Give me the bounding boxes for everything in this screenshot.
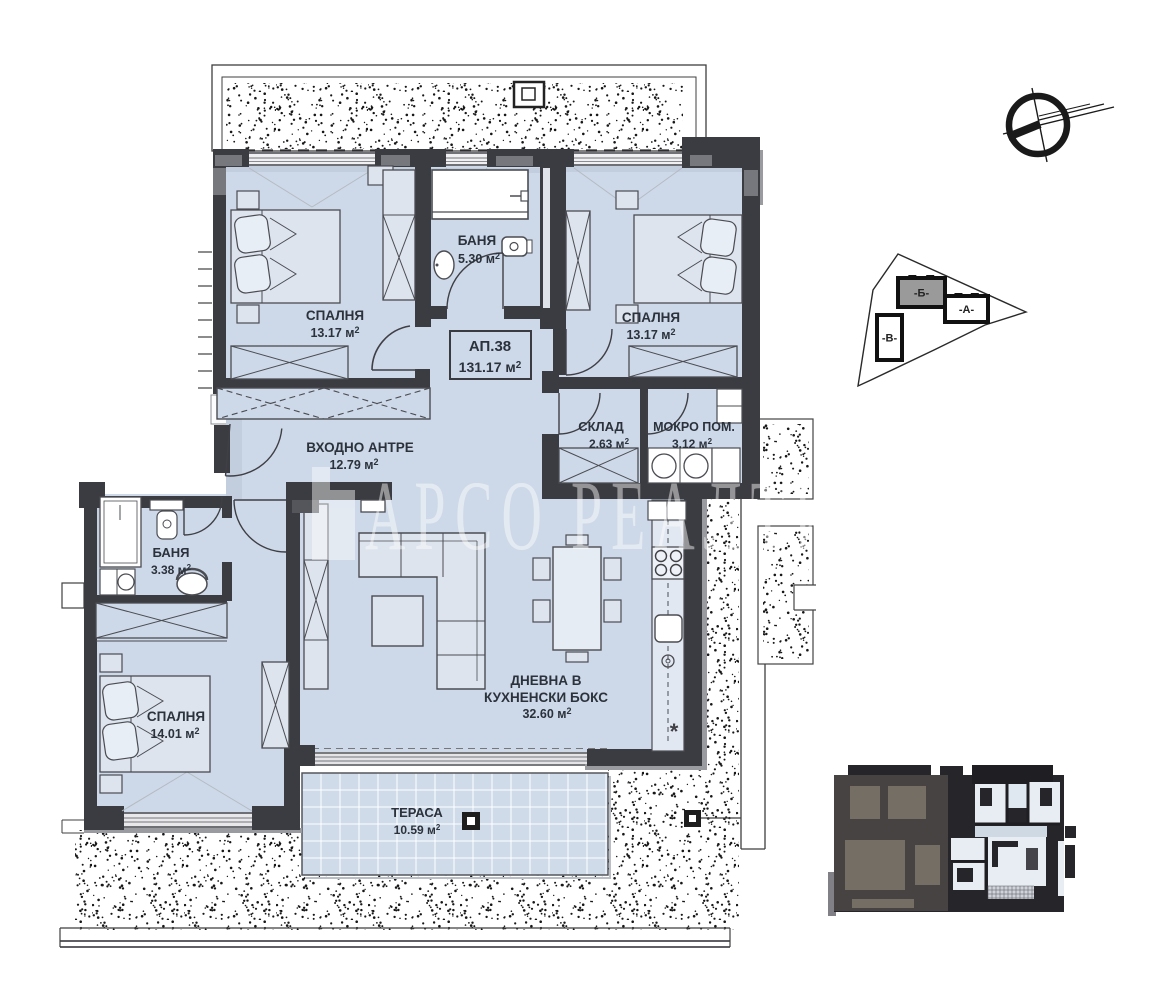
svg-text:13.17 м2: 13.17 м2 (626, 327, 675, 342)
svg-text:32.60 м2: 32.60 м2 (522, 706, 571, 721)
svg-text:5.30 м2: 5.30 м2 (458, 251, 500, 266)
svg-text:3.12 м2: 3.12 м2 (672, 437, 713, 451)
svg-text:-Б-: -Б- (914, 288, 930, 300)
svg-text:БАНЯ: БАНЯ (153, 545, 190, 560)
svg-text:14.01 м2: 14.01 м2 (150, 726, 199, 741)
svg-text:131.17 м2: 131.17 м2 (459, 359, 522, 375)
svg-text:ВХОДНО АНТРЕ: ВХОДНО АНТРЕ (306, 440, 414, 455)
svg-text:-В-: -В- (882, 333, 898, 345)
svg-text:КУХНЕНСКИ БОКС: КУХНЕНСКИ БОКС (484, 690, 608, 705)
svg-text:МОКРО ПОМ.: МОКРО ПОМ. (653, 420, 735, 434)
svg-text:АРСО: АРСО (365, 460, 551, 571)
svg-text:СКЛАД: СКЛАД (578, 419, 624, 434)
svg-text:БАНЯ: БАНЯ (458, 233, 496, 248)
svg-text:ТЕРАСА: ТЕРАСА (391, 805, 443, 820)
svg-text:АП.38: АП.38 (469, 338, 511, 355)
svg-text:СПАЛНЯ: СПАЛНЯ (147, 709, 205, 724)
svg-text:*: * (670, 719, 679, 744)
svg-text:СПАЛНЯ: СПАЛНЯ (622, 310, 680, 325)
svg-text:10.59 м2: 10.59 м2 (394, 823, 441, 837)
svg-text:13.17 м2: 13.17 м2 (310, 325, 359, 340)
svg-text:ДНЕВНА В: ДНЕВНА В (510, 673, 581, 688)
svg-text:-А-: -А- (959, 304, 975, 316)
svg-text:2.63 м2: 2.63 м2 (589, 437, 630, 451)
svg-text:РЕАЛТИ: РЕАЛТИ (571, 460, 843, 571)
svg-text:3.38 м2: 3.38 м2 (151, 563, 192, 577)
svg-text:СПАЛНЯ: СПАЛНЯ (306, 308, 364, 323)
